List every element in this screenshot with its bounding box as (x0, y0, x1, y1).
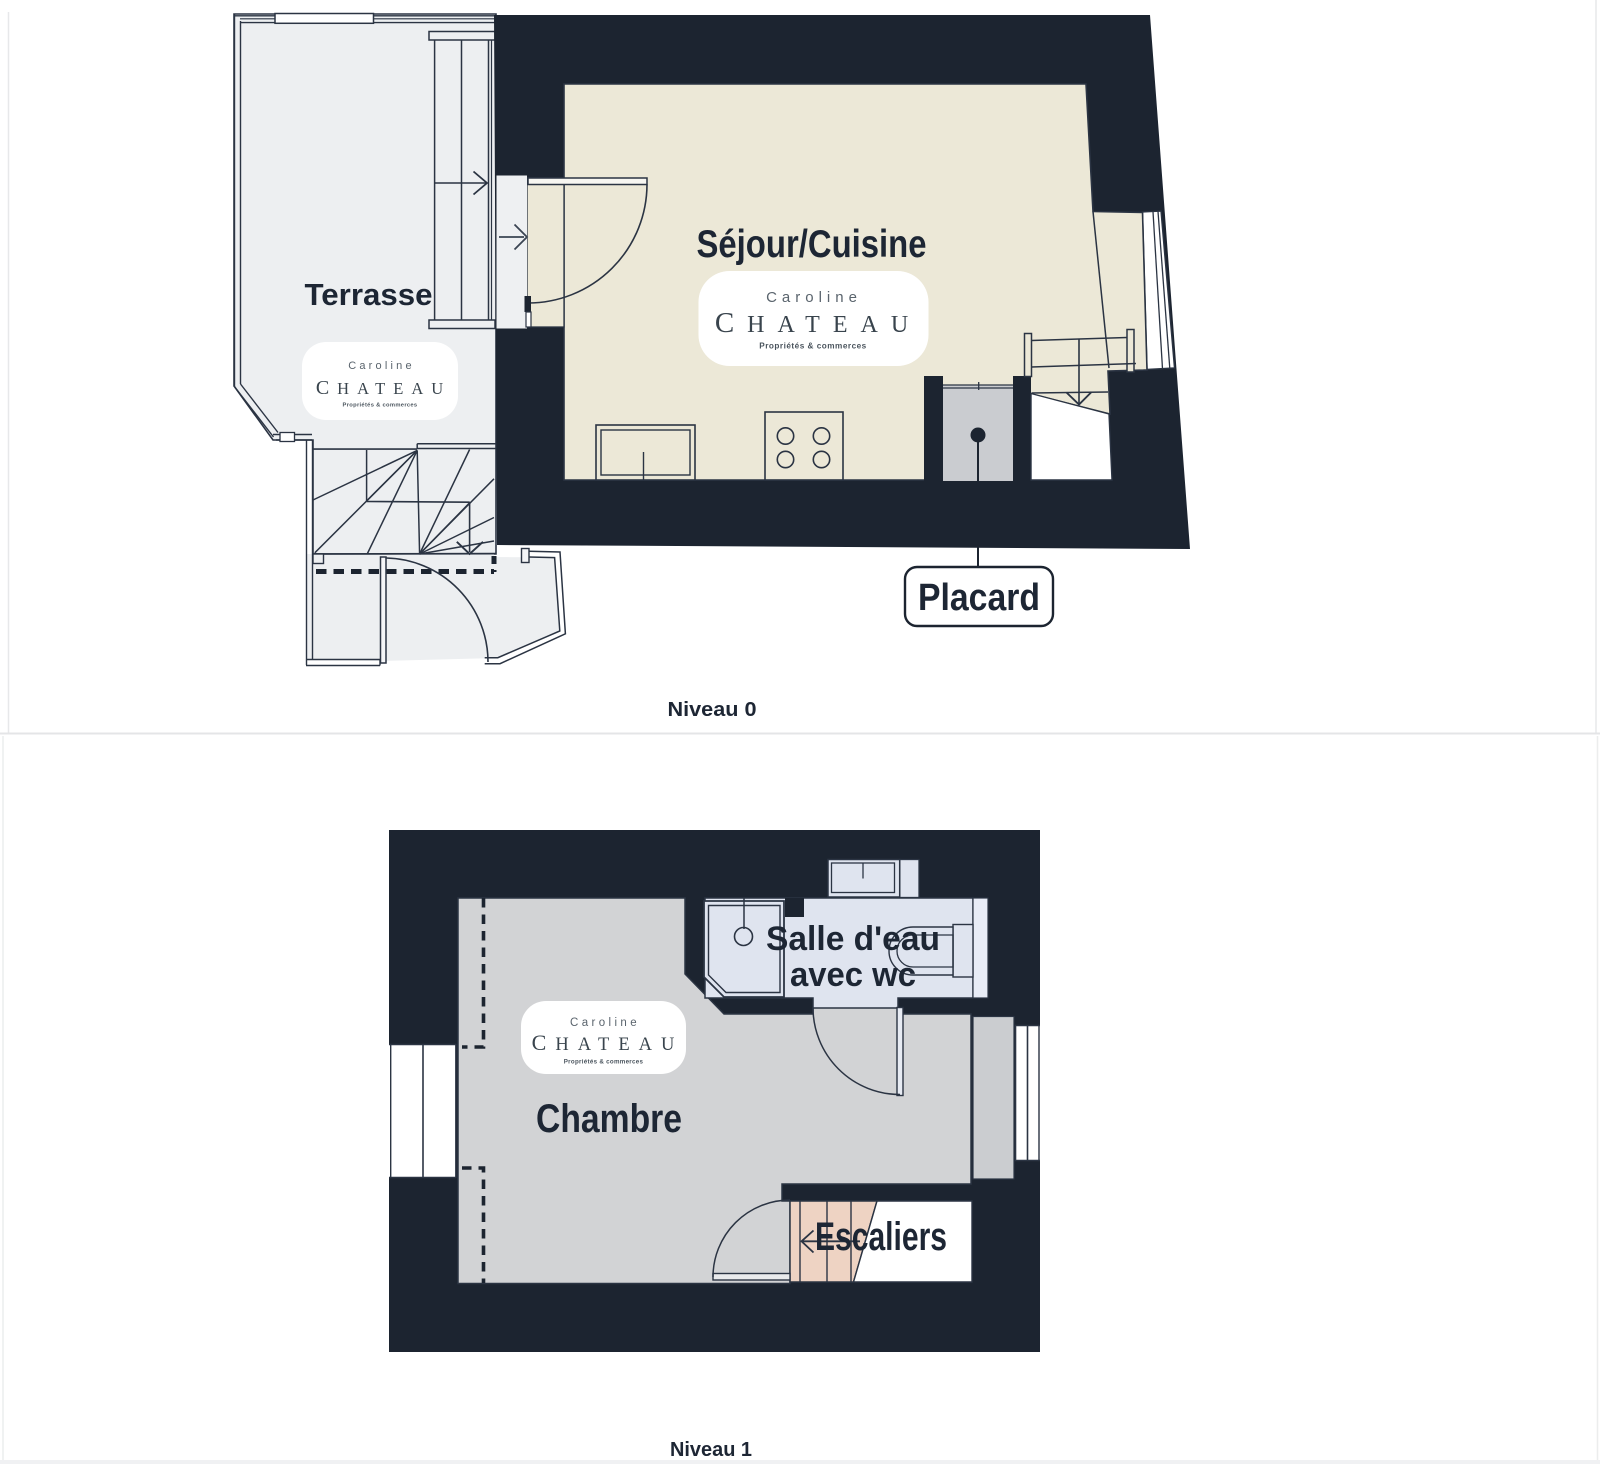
svg-text:Niveau 1: Niveau 1 (670, 1439, 752, 1461)
svg-text:Placard: Placard (918, 577, 1040, 619)
svg-text:avec wc: avec wc (790, 956, 916, 994)
svg-text:Terrasse: Terrasse (305, 277, 433, 312)
svg-text:Caroline: Caroline (766, 289, 862, 306)
svg-text:Séjour/Cuisine: Séjour/Cuisine (697, 223, 927, 266)
svg-text:Salle d'eau: Salle d'eau (766, 920, 940, 958)
svg-text:Propriétés & commerces: Propriétés & commerces (759, 342, 866, 351)
svg-text:CHATEAU: CHATEAU (715, 307, 921, 339)
svg-text:Propriétés & commerces: Propriétés & commerces (564, 1059, 644, 1066)
svg-text:Caroline: Caroline (348, 360, 415, 372)
svg-text:Chambre: Chambre (536, 1097, 682, 1141)
svg-text:Caroline: Caroline (570, 1017, 640, 1029)
svg-text:Propriétés & commerces: Propriétés & commerces (343, 403, 418, 409)
svg-text:Niveau 0: Niveau 0 (668, 699, 757, 721)
svg-text:CHATEAU: CHATEAU (316, 377, 451, 399)
svg-text:Escaliers: Escaliers (815, 1215, 947, 1259)
